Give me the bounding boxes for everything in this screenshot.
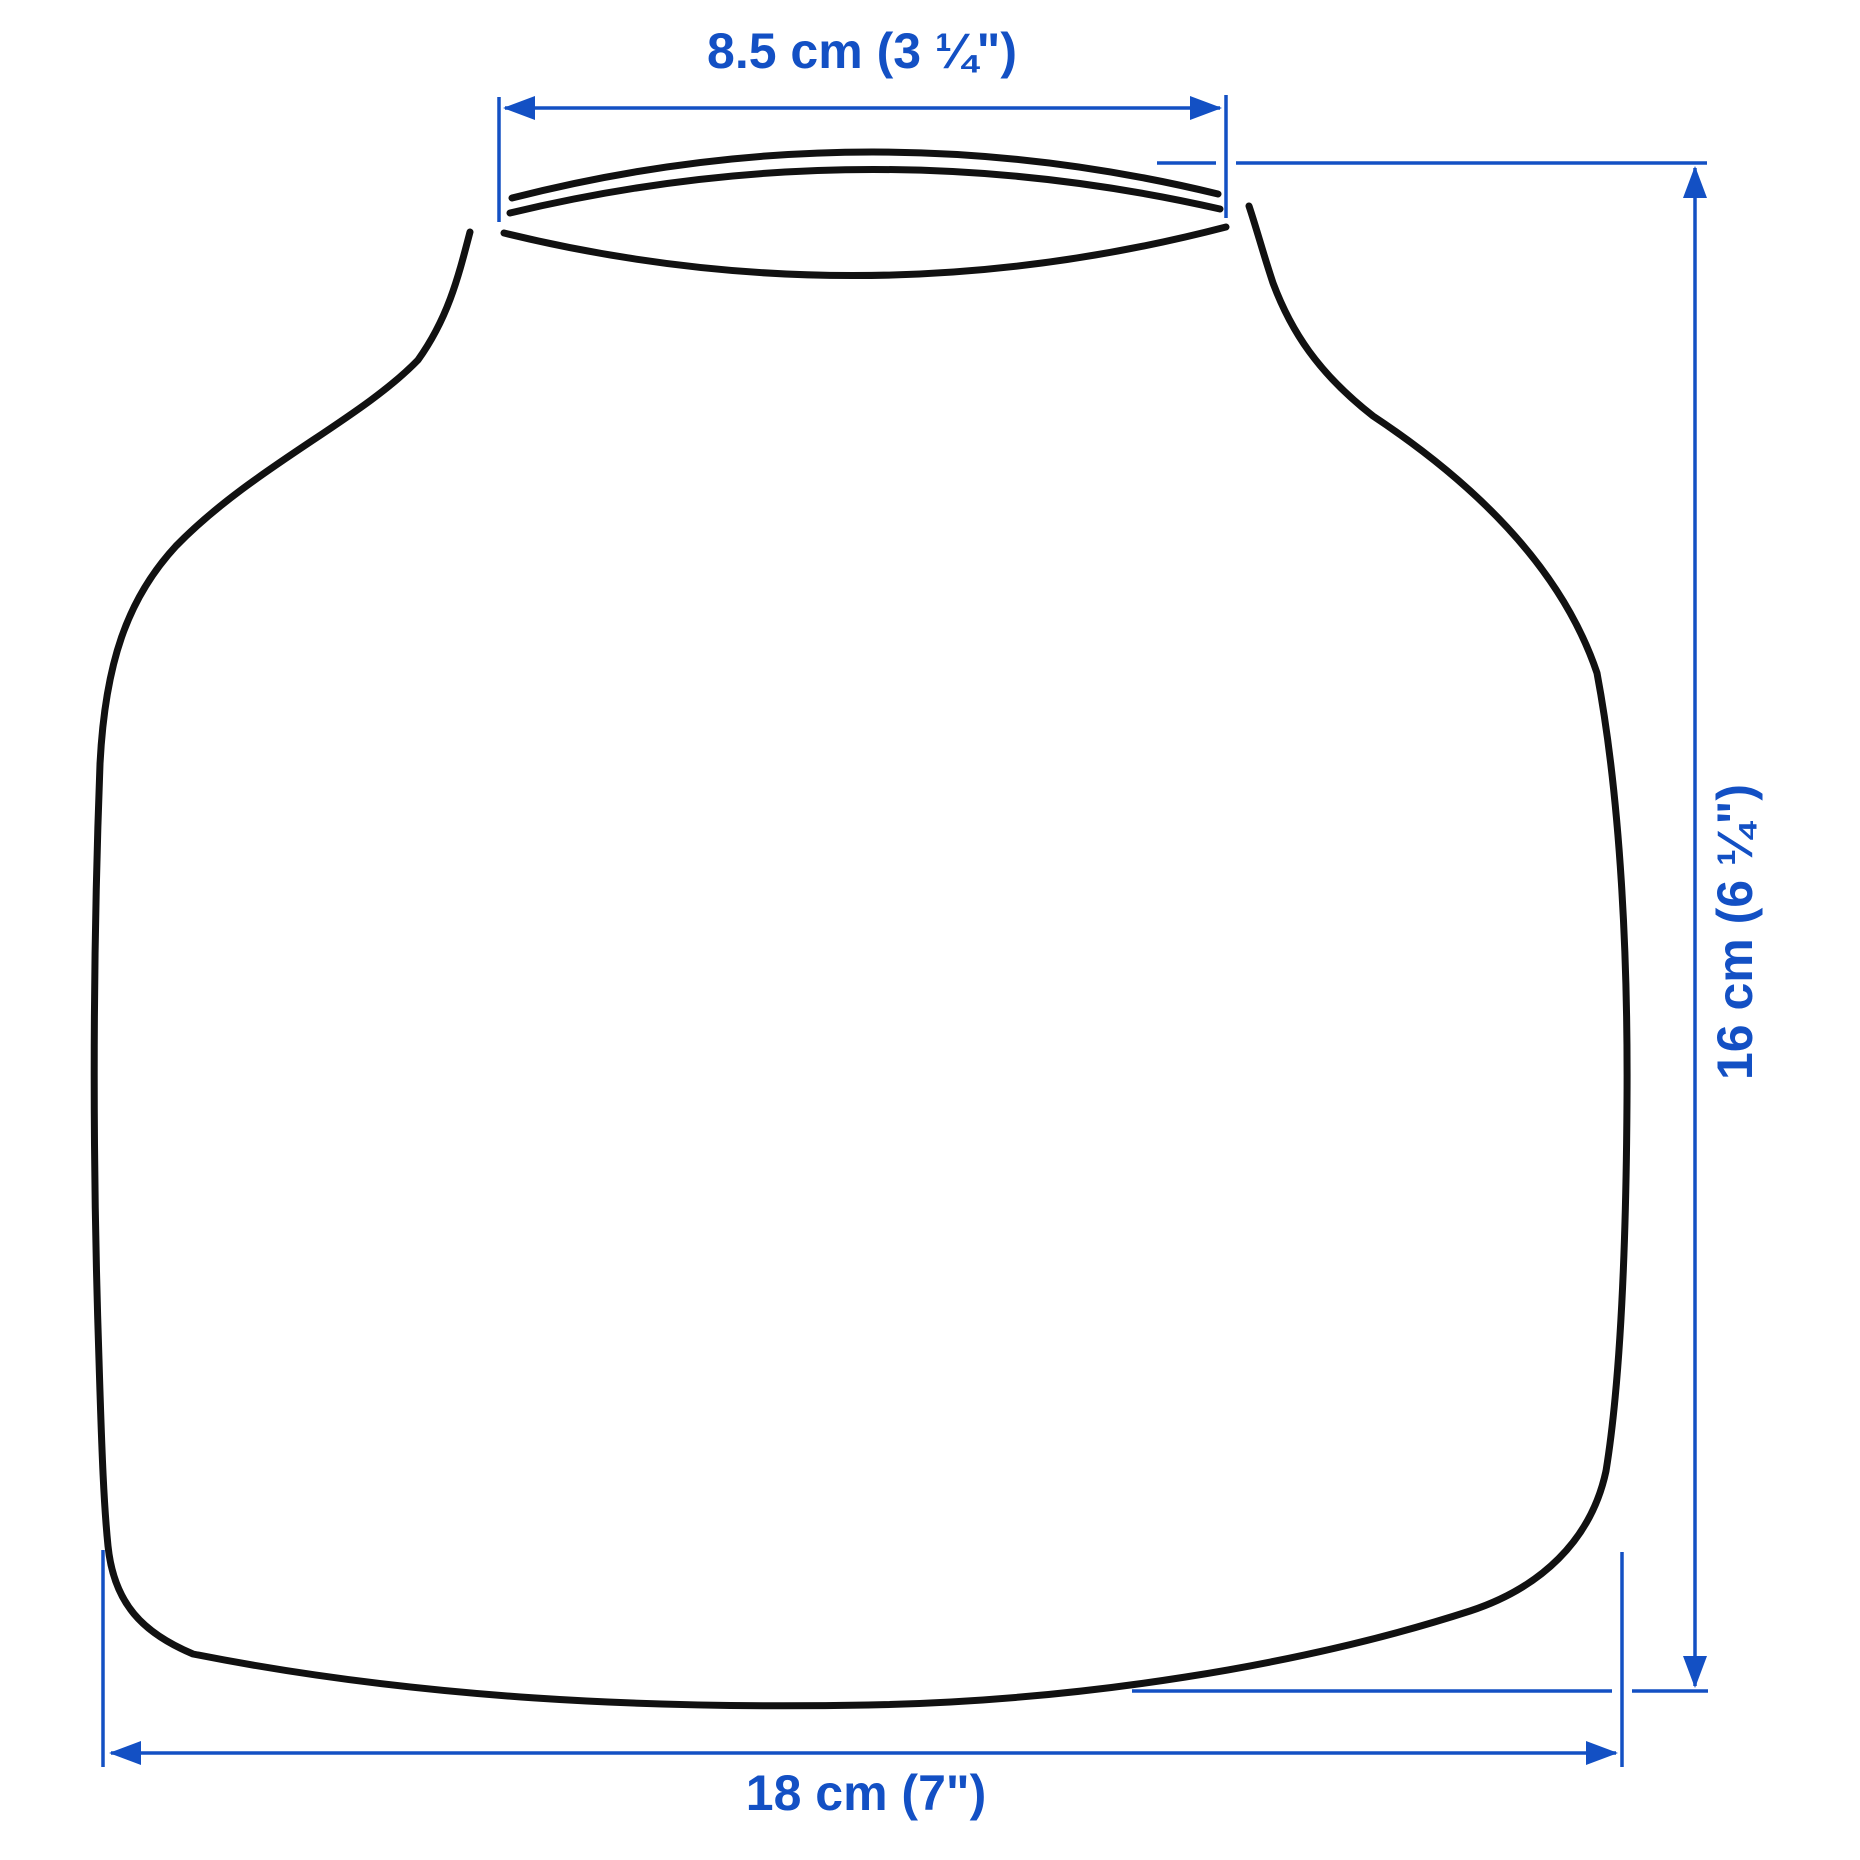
arrow-left-icon	[503, 96, 535, 120]
height-label: 16 cm (6 ¼")	[1710, 784, 1760, 1080]
arrow-up-icon	[1683, 166, 1707, 198]
diagram-canvas	[0, 0, 1860, 1860]
base-width-label: 18 cm (7")	[746, 1768, 986, 1818]
base-width-dimension	[103, 1550, 1622, 1767]
vase-body-outline	[94, 206, 1627, 1706]
vase-dimension-diagram: 8.5 cm (3 ¼") 16 cm (6 ¼") 18 cm (7")	[0, 0, 1860, 1860]
arrow-down-icon	[1683, 1656, 1707, 1688]
opening-width-dimension	[499, 95, 1226, 222]
arrow-right-icon	[1586, 1741, 1618, 1765]
vase-illustration	[94, 152, 1627, 1706]
arrow-left-icon	[109, 1741, 141, 1765]
opening-width-label: 8.5 cm (3 ¼")	[707, 26, 1017, 76]
arrow-right-icon	[1190, 96, 1222, 120]
vase-mouth-front-line	[504, 227, 1226, 276]
